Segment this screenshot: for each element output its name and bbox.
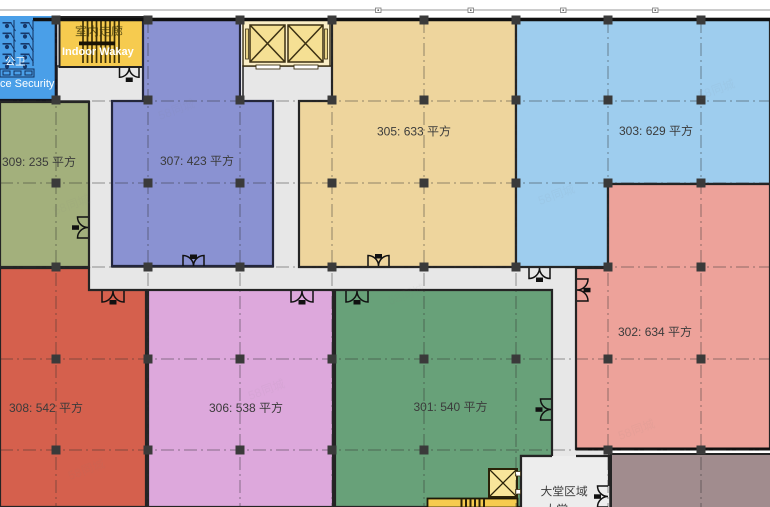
svg-text:Indoor Wakay: Indoor Wakay [62, 46, 135, 58]
svg-text:303: 629: 303: 629 [619, 124, 666, 138]
svg-text:305: 633: 305: 633 [377, 125, 424, 139]
svg-text:ce Security: ce Security [0, 78, 55, 90]
svg-text:308: 542: 308: 542 [9, 401, 56, 415]
svg-text:306: 538: 306: 538 [209, 401, 256, 415]
svg-text:302: 634: 302: 634 [618, 325, 665, 339]
svg-text:307: 423: 307: 423 [160, 154, 207, 168]
svg-text:301: 540: 301: 540 [414, 400, 461, 414]
svg-text:309: 235: 309: 235 [2, 155, 49, 169]
